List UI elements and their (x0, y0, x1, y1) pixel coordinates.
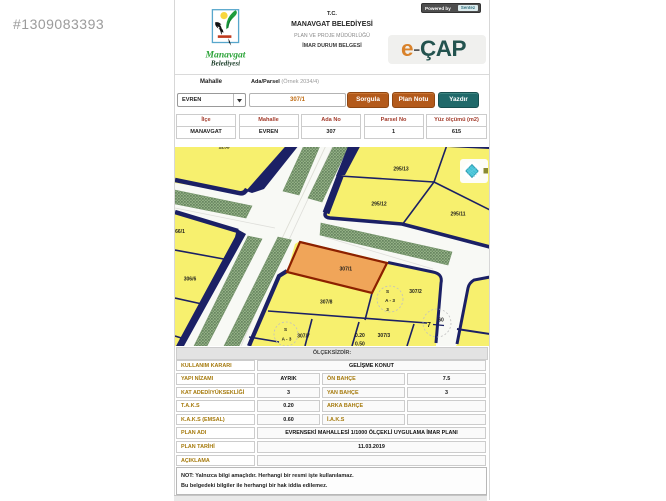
svg-text:307/2: 307/2 (409, 289, 422, 295)
svg-text:307/7: 307/7 (297, 334, 310, 340)
svg-text:S: S (284, 327, 287, 332)
svg-text:0.50: 0.50 (355, 342, 365, 347)
svg-text:307/8: 307/8 (320, 300, 333, 306)
svg-text:60: 60 (438, 318, 444, 324)
svg-text:295/12: 295/12 (371, 202, 387, 208)
svg-text:295/13: 295/13 (393, 167, 409, 173)
svg-text:3: 3 (386, 307, 389, 312)
svg-text:A - 3: A - 3 (282, 337, 292, 342)
svg-text:7: 7 (427, 322, 431, 329)
svg-text:1253: 1253 (218, 147, 229, 151)
svg-text:306/6: 306/6 (184, 277, 197, 283)
svg-text:295/11: 295/11 (450, 212, 465, 218)
svg-text:0.20: 0.20 (355, 333, 365, 339)
svg-text:307/1: 307/1 (340, 267, 353, 273)
svg-text:Belediyesi: Belediyesi (210, 60, 240, 68)
svg-text:307/3: 307/3 (378, 333, 391, 339)
svg-text:66/1: 66/1 (175, 229, 185, 235)
svg-text:S: S (386, 289, 389, 294)
svg-text:A - 3: A - 3 (385, 298, 395, 303)
